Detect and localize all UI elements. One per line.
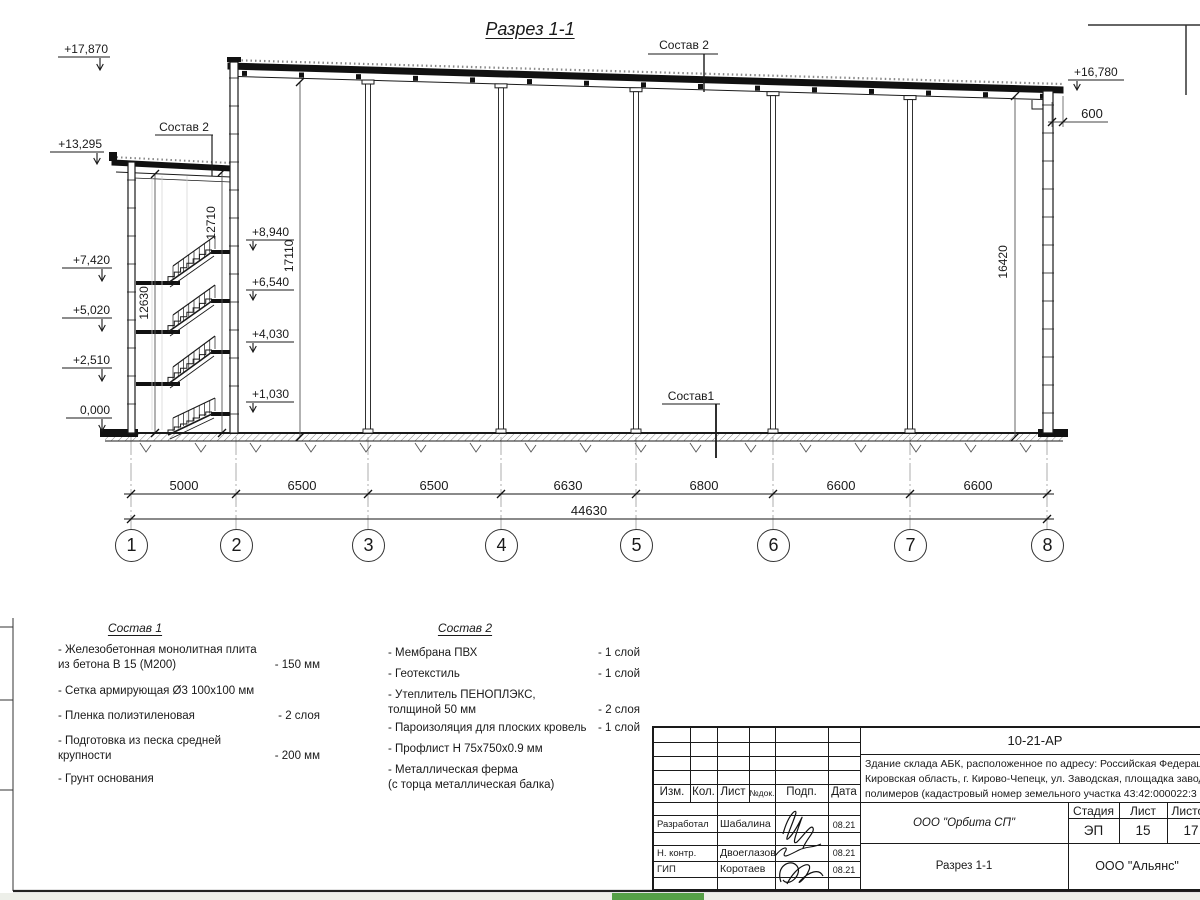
material-name: - Пароизоляция для плоских кровель	[388, 721, 587, 736]
company-name: ООО "Альянс"	[1068, 843, 1200, 889]
dimension-label: 6600	[938, 479, 1018, 494]
stamp-drawing-name: Разрез 1-1	[860, 843, 1068, 889]
material-value: - 200 мм	[275, 749, 320, 764]
materials2-row: - Утеплитель ПЕНОПЛЭКС, толщиной 50 мм -…	[388, 688, 640, 717]
material-value: - 150 мм	[275, 658, 320, 673]
vertical-dim-12630: 12630	[138, 273, 152, 333]
materials2-row: - Металлическая ферма (с торца металличе…	[388, 763, 640, 792]
material-name: - Железобетонная монолитная плита из бет…	[58, 643, 257, 672]
stage-value: ЭП	[1068, 823, 1119, 838]
dimension-label: 6500	[394, 479, 474, 494]
material-value: - 1 слой	[598, 667, 640, 682]
material-name: - Металлическая ферма (с торца металличе…	[388, 763, 554, 792]
bottom-green-strip	[612, 893, 704, 900]
vertical-dim-17110: 17110	[283, 226, 297, 286]
drawing-title: Разрез 1-1	[460, 19, 600, 40]
material-value: - 1 слой	[598, 646, 640, 661]
materials2-row: - Профлист Н 75х750х0.9 мм	[388, 742, 640, 757]
role-label: Н. контр.	[657, 848, 696, 859]
sheets-value: 17	[1167, 823, 1200, 838]
elevation-label: +7,420	[60, 254, 110, 268]
materials2-row: - Пароизоляция для плоских кровель - 1 с…	[388, 721, 640, 736]
sostav2-stair-label: Состав 2	[152, 121, 216, 135]
elevation-label: +13,295	[48, 138, 102, 152]
total-dim-label: 44630	[539, 504, 639, 519]
role-date: 08.21	[828, 848, 860, 858]
material-name: - Мембрана ПВХ	[388, 646, 477, 661]
col-header-podp: Подп.	[775, 786, 828, 798]
materials2-title: Состав 2	[430, 622, 500, 636]
dimension-label: 6630	[528, 479, 608, 494]
axis-bubble: 6	[757, 529, 790, 562]
doc-number: 10-21-АР	[860, 733, 1200, 748]
axis-bubble: 8	[1031, 529, 1064, 562]
material-value: - 2 слоя	[598, 703, 640, 718]
role-label: ГИП	[657, 864, 676, 875]
dimension-label: 5000	[144, 479, 224, 494]
role-label: Разработал	[657, 819, 709, 830]
axis-bubble: 4	[485, 529, 518, 562]
elevation-label: +1,030	[252, 388, 289, 402]
dimension-label: 6500	[262, 479, 342, 494]
project-description: Здание склада АБК, расположенное по адре…	[865, 757, 1200, 802]
materials1-title: Состав 1	[100, 622, 170, 636]
role-name: Шабалина	[720, 818, 771, 830]
elevation-label: +16,780	[1074, 66, 1118, 80]
elevation-label: +4,030	[252, 328, 289, 342]
org-name: ООО "Орбита СП"	[860, 802, 1068, 843]
col-header-izm: Изм.	[654, 786, 690, 798]
sheets-label: Листов	[1167, 804, 1200, 818]
dimension-label: 6600	[801, 479, 881, 494]
axis-bubble: 5	[620, 529, 653, 562]
drawing-sheet: Разрез 1-1 Состав 2 Состав 2 Состав1 +17…	[0, 0, 1200, 900]
col-header-ndok: №док.	[749, 788, 775, 798]
signature-scribbles	[773, 804, 831, 892]
axis-bubble: 3	[352, 529, 385, 562]
material-name: - Сетка армирующая Ø3 100х100 мм	[58, 684, 254, 699]
dim-600: 600	[1072, 107, 1112, 122]
sheet-value: 15	[1119, 823, 1167, 838]
sostav1-floor-label: Состав1	[662, 390, 720, 404]
bottom-margin-strip	[0, 893, 1200, 900]
axis-bubble: 1	[115, 529, 148, 562]
materials1-row: - Грунт основания	[58, 772, 320, 787]
role-name: Двоеглазов	[720, 847, 776, 859]
elevation-label: +5,020	[60, 304, 110, 318]
col-header-list: Лист	[717, 786, 749, 798]
sheet-label: Лист	[1119, 804, 1167, 818]
material-value: - 1 слой	[598, 721, 640, 736]
title-block: 10-21-АР Здание склада АБК, расположенно…	[652, 726, 1200, 891]
elevation-label: +2,510	[60, 354, 110, 368]
vertical-dim-12710: 12710	[205, 193, 219, 253]
materials1-row: - Железобетонная монолитная плита из бет…	[58, 643, 320, 672]
axis-bubble: 7	[894, 529, 927, 562]
role-date: 08.21	[828, 820, 860, 830]
material-value: - 2 слоя	[278, 709, 320, 724]
materials1-row: - Пленка полиэтиленовая - 2 слоя	[58, 709, 320, 724]
col-header-data: Дата	[828, 786, 860, 798]
material-name: - Профлист Н 75х750х0.9 мм	[388, 742, 543, 757]
materials1-row: - Сетка армирующая Ø3 100х100 мм	[58, 684, 320, 699]
sostav2-roof-label: Состав 2	[648, 39, 720, 53]
elevation-label: +17,870	[56, 43, 108, 57]
dimension-label: 6800	[664, 479, 744, 494]
material-name: - Утеплитель ПЕНОПЛЭКС, толщиной 50 мм	[388, 688, 536, 717]
col-header-kol: Кол.	[690, 786, 717, 798]
materials2-row: - Мембрана ПВХ - 1 слой	[388, 646, 640, 661]
stage-label: Стадия	[1068, 804, 1119, 818]
materials2-row: - Геотекстиль - 1 слой	[388, 667, 640, 682]
material-name: - Подготовка из песка средней крупности	[58, 734, 221, 763]
material-name: - Пленка полиэтиленовая	[58, 709, 195, 724]
material-name: - Геотекстиль	[388, 667, 460, 682]
role-date: 08.21	[828, 865, 860, 875]
material-name: - Грунт основания	[58, 772, 154, 787]
vertical-dim-16420: 16420	[997, 232, 1011, 292]
axis-bubble: 2	[220, 529, 253, 562]
role-name: Коротаев	[720, 863, 765, 875]
elevation-label: 0,000	[64, 404, 110, 418]
materials1-row: - Подготовка из песка средней крупности …	[58, 734, 320, 763]
